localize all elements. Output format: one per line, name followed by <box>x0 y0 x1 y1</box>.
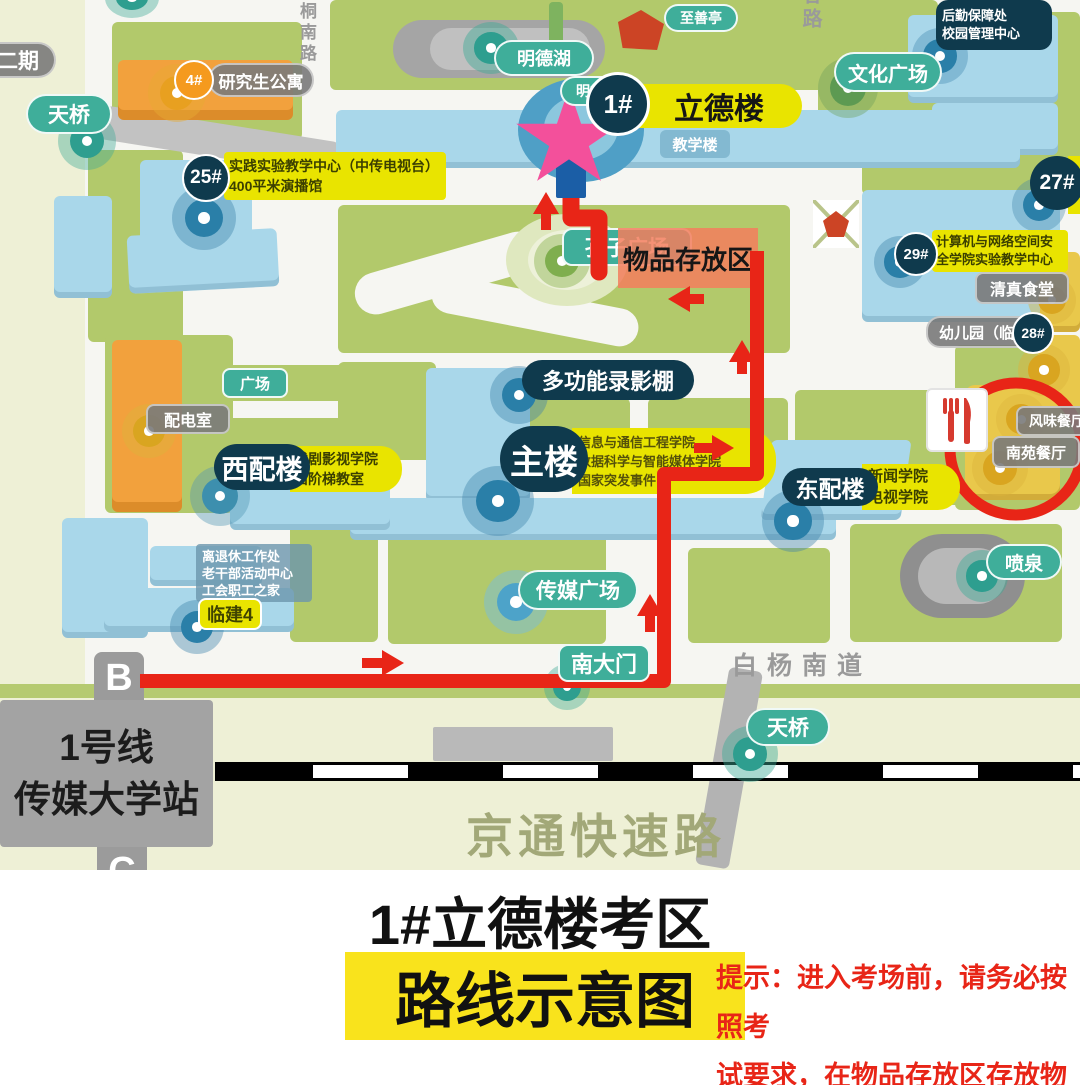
label-25-line1: 实践实验教学中心（中传电视台） <box>229 156 441 176</box>
label-mingdehu: 明德湖 <box>494 40 594 76</box>
label-25-line2: 400平米演播馆 <box>229 176 441 196</box>
map-canvas: 桐南路 谷路 白杨南道 京通快速路 物品存放区 <box>0 0 1080 870</box>
label-qingzhen: 清真食堂 <box>975 272 1069 304</box>
label-29-line2: 全学院实验教学中心 <box>936 251 1064 269</box>
footer-hint: 提示：进入考场前，请务必按照考 试要求，在物品存放区存放物品 <box>716 954 1080 1085</box>
label-xinwen-line2: 电视学院 <box>868 487 954 508</box>
label-erqi: 二期 <box>0 42 56 78</box>
label-peidianshi: 配电室 <box>146 404 230 434</box>
label-lituixiu-line2: 老干部活动中心 <box>202 565 306 582</box>
route-star-zigzag <box>571 196 599 272</box>
badge-1: 1# <box>586 72 650 136</box>
label-linjian4: 临建4 <box>198 598 262 630</box>
badge-27: 27# <box>1030 156 1080 210</box>
label-fengwei: 风味餐厅 <box>1016 406 1080 436</box>
label-29: 计算机与网络空间安 全学院实验教学中心 <box>932 230 1068 272</box>
label-chuanmei: 传媒广场 <box>518 570 638 610</box>
footer-title: 1#立德楼考区 <box>0 880 1080 961</box>
label-lituixiu-line1: 离退休工作处 <box>202 548 306 565</box>
badge-4: 4# <box>174 60 214 100</box>
badge-29: 29# <box>894 232 938 276</box>
label-wenhua: 文化广场 <box>834 52 942 92</box>
label-duogongneng: 多功能录影棚 <box>522 360 694 400</box>
footer-hint-line2: 试要求，在物品存放区存放物品 <box>716 1052 1080 1085</box>
label-houqin-line2: 校园管理中心 <box>942 25 1046 43</box>
label-tianqiao-btm: 天桥 <box>746 708 830 746</box>
label-29-line1: 计算机与网络空间安 <box>936 233 1064 251</box>
label-zhishanting: 至善亭 <box>664 4 738 32</box>
footer-hint-line1: 提示：进入考场前，请务必按照考 <box>716 954 1080 1052</box>
label-nanyuan: 南苑餐厅 <box>992 436 1080 468</box>
label-tianqiao-top: 天桥 <box>26 94 112 134</box>
label-guangchang: 广场 <box>222 368 288 398</box>
label-lituixiu: 离退休工作处 老干部活动中心 工会职工之家 <box>196 544 312 602</box>
label-penquan: 喷泉 <box>986 544 1062 580</box>
label-xipeilou: 西配楼 <box>214 444 310 490</box>
label-dongpeilou: 东配楼 <box>782 468 878 506</box>
label-xiju-line2: 西阶梯教室 <box>294 469 398 489</box>
label-xinwen-line1: 新闻学院 <box>868 466 954 487</box>
label-nandamen: 南大门 <box>558 644 650 682</box>
footer-subtitle: 路线示意图 <box>345 952 745 1040</box>
campus-route-map: 桐南路 谷路 白杨南道 京通快速路 物品存放区 <box>0 0 1080 1085</box>
label-grad: 研究生公寓 <box>208 63 314 97</box>
badge-25: 25# <box>182 154 230 202</box>
restaurant-icon <box>926 388 988 452</box>
label-lituixiu-line3: 工会职工之家 <box>202 582 306 599</box>
badge-28: 28# <box>1012 312 1054 354</box>
label-houqin-line1: 后勤保障处 <box>942 7 1046 25</box>
label-25: 实践实验教学中心（中传电视台） 400平米演播馆 <box>224 152 446 200</box>
label-houqin: 后勤保障处 校园管理中心 <box>936 0 1052 50</box>
label-jiaoxuelou: 教学楼 <box>660 130 730 158</box>
